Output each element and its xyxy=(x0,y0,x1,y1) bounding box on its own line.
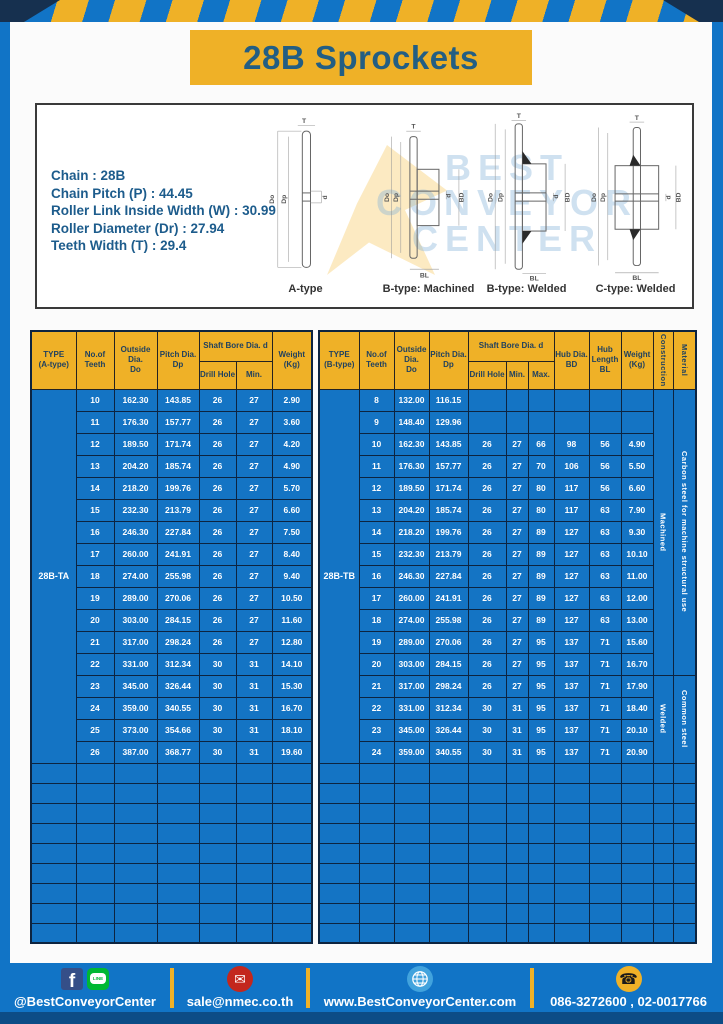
table-cell xyxy=(554,389,589,411)
table-cell xyxy=(236,783,272,803)
table-cell: 26 xyxy=(199,455,236,477)
table-cell: 6.60 xyxy=(272,499,312,521)
table-cell xyxy=(199,843,236,863)
table-cell: 4.90 xyxy=(621,433,653,455)
table-cell xyxy=(199,803,236,823)
table-cell xyxy=(319,763,359,783)
table-cell: 27 xyxy=(506,675,528,697)
table-cell: 148.40 xyxy=(394,411,429,433)
table-cell xyxy=(554,803,589,823)
table-cell xyxy=(589,783,621,803)
table-cell xyxy=(554,823,589,843)
table-cell xyxy=(621,883,653,903)
table-cell: 298.24 xyxy=(429,675,468,697)
table-cell xyxy=(114,783,157,803)
table-cell xyxy=(506,783,528,803)
col-header-weight: Weight (Kg) xyxy=(272,331,312,389)
table-cell xyxy=(76,903,114,923)
table-cell xyxy=(468,763,506,783)
website-url: www.BestConveyorCenter.com xyxy=(324,994,516,1009)
table-cell xyxy=(272,843,312,863)
table-cell: 204.20 xyxy=(394,499,429,521)
table-cell xyxy=(157,843,199,863)
empty-table-row xyxy=(31,863,312,883)
table-cell: 4.90 xyxy=(272,455,312,477)
table-cell xyxy=(319,843,359,863)
table-cell: 127 xyxy=(554,521,589,543)
table-row: 24359.00340.553031951377120.90 xyxy=(319,741,696,763)
table-cell: 106 xyxy=(554,455,589,477)
table-cell: 71 xyxy=(589,631,621,653)
table-cell xyxy=(199,783,236,803)
table-cell: 16 xyxy=(76,521,114,543)
table-cell: 27 xyxy=(506,631,528,653)
table-cell xyxy=(157,923,199,943)
table-cell: 27 xyxy=(236,477,272,499)
table-cell: 137 xyxy=(554,697,589,719)
table-cell: 26 xyxy=(468,631,506,653)
table-cell xyxy=(621,903,653,923)
table-cell xyxy=(528,763,554,783)
table-cell xyxy=(31,783,76,803)
table-cell: 15.60 xyxy=(621,631,653,653)
table-cell xyxy=(319,923,359,943)
table-cell: 26 xyxy=(199,477,236,499)
table-cell: 199.76 xyxy=(429,521,468,543)
social-handle: @BestConveyorCenter xyxy=(14,994,156,1009)
table-cell xyxy=(199,823,236,843)
table-row: 20303.00284.152627951377116.70 xyxy=(319,653,696,675)
table-cell xyxy=(673,783,696,803)
table-cell: 89 xyxy=(528,521,554,543)
table-cell: 89 xyxy=(528,565,554,587)
table-cell: 30 xyxy=(468,719,506,741)
table-cell xyxy=(429,783,468,803)
table-cell xyxy=(394,903,429,923)
table-cell xyxy=(157,863,199,883)
material-cell: Carbon steel for machine structural use xyxy=(673,389,696,675)
table-cell: 11.00 xyxy=(621,565,653,587)
table-cell: 14 xyxy=(359,521,394,543)
table-cell xyxy=(157,903,199,923)
svg-text:Dp: Dp xyxy=(497,193,504,202)
svg-text:T: T xyxy=(517,113,522,120)
table-cell xyxy=(114,923,157,943)
table-cell: 30 xyxy=(199,675,236,697)
table-cell xyxy=(157,883,199,903)
table-cell: 21 xyxy=(76,631,114,653)
footer-website: www.BestConveyorCenter.com xyxy=(310,966,530,1009)
table-cell xyxy=(76,783,114,803)
empty-table-row xyxy=(319,863,696,883)
table-cell: 199.76 xyxy=(157,477,199,499)
table-row: 10162.30143.8526276698564.90 xyxy=(319,433,696,455)
table-cell: 27 xyxy=(236,609,272,631)
empty-table-row xyxy=(319,923,696,943)
table-cell: 260.00 xyxy=(114,543,157,565)
table-cell: 27 xyxy=(506,565,528,587)
facebook-icon: f xyxy=(61,968,83,990)
table-cell: 27 xyxy=(236,543,272,565)
table-cell: 270.06 xyxy=(429,631,468,653)
table-cell xyxy=(468,389,506,411)
table-cell xyxy=(157,763,199,783)
col-header-shaft-bore: Shaft Bore Dia. d xyxy=(468,331,554,361)
table-cell: 331.00 xyxy=(114,653,157,675)
table-cell: 2.90 xyxy=(272,389,312,411)
table-cell: 63 xyxy=(589,543,621,565)
svg-text:Dp: Dp xyxy=(393,193,400,202)
table-cell xyxy=(653,763,673,783)
table-cell: 20 xyxy=(76,609,114,631)
table-cell xyxy=(468,803,506,823)
spec-line-chain: Chain : 28B xyxy=(51,167,276,185)
table-cell xyxy=(589,923,621,943)
table-cell xyxy=(76,923,114,943)
table-cell: 26 xyxy=(468,609,506,631)
table-cell xyxy=(272,883,312,903)
table-cell: 23 xyxy=(76,675,114,697)
table-cell xyxy=(673,863,696,883)
footer-email: ✉ sale@nmec.co.th xyxy=(174,966,306,1009)
table-cell xyxy=(621,843,653,863)
svg-text:Do: Do xyxy=(591,193,598,202)
table-cell xyxy=(114,863,157,883)
table-cell: 345.00 xyxy=(394,719,429,741)
table-cell: 27 xyxy=(236,499,272,521)
table-cell: 27 xyxy=(506,543,528,565)
construction-cell: Welded xyxy=(653,675,673,763)
table-cell: 31 xyxy=(506,719,528,741)
table-cell xyxy=(468,863,506,883)
table-b-type: TYPE (B-type) No.of Teeth Outside Dia. D… xyxy=(318,330,697,944)
table-cell xyxy=(76,883,114,903)
table-cell xyxy=(319,863,359,883)
table-cell: 18 xyxy=(76,565,114,587)
table-cell xyxy=(272,863,312,883)
table-cell: 71 xyxy=(589,697,621,719)
table-cell: 15 xyxy=(76,499,114,521)
table-cell xyxy=(31,923,76,943)
col-header-type-a: TYPE (A-type) xyxy=(31,331,76,389)
table-cell xyxy=(554,903,589,923)
table-cell xyxy=(236,903,272,923)
table-cell: 11 xyxy=(359,455,394,477)
table-cell: 340.55 xyxy=(157,697,199,719)
table-cell: 70 xyxy=(528,455,554,477)
table-cell: 284.15 xyxy=(157,609,199,631)
table-cell: 26 xyxy=(468,653,506,675)
table-cell xyxy=(236,863,272,883)
table-cell xyxy=(157,823,199,843)
table-cell xyxy=(31,903,76,923)
table-cell: 10.10 xyxy=(621,543,653,565)
table-cell xyxy=(589,843,621,863)
svg-text:d: d xyxy=(322,195,329,199)
table-cell: 143.85 xyxy=(429,433,468,455)
table-cell xyxy=(653,903,673,923)
table-cell xyxy=(468,843,506,863)
table-cell: 6.60 xyxy=(621,477,653,499)
table-cell: 10 xyxy=(359,433,394,455)
table-cell xyxy=(157,803,199,823)
table-cell: 23 xyxy=(359,719,394,741)
table-cell xyxy=(506,823,528,843)
table-cell: 26 xyxy=(199,499,236,521)
col-header-material: Material xyxy=(673,331,696,389)
table-cell xyxy=(429,903,468,923)
table-cell xyxy=(359,843,394,863)
table-cell: 3.60 xyxy=(272,411,312,433)
table-row: 15232.30213.792627891276310.10 xyxy=(319,543,696,565)
col-header-drill-hole: Drill Hole xyxy=(199,361,236,389)
table-cell: 15.30 xyxy=(272,675,312,697)
table-cell: 137 xyxy=(554,631,589,653)
svg-text:BD: BD xyxy=(675,192,682,202)
svg-text:BL: BL xyxy=(530,276,539,281)
table-cell: 26 xyxy=(468,565,506,587)
table-cell: 9 xyxy=(359,411,394,433)
svg-text:Do: Do xyxy=(384,193,391,202)
table-cell: 89 xyxy=(528,543,554,565)
table-cell xyxy=(653,803,673,823)
table-cell xyxy=(673,923,696,943)
table-cell: 16 xyxy=(359,565,394,587)
table-cell: 11.60 xyxy=(272,609,312,631)
table-cell: 12 xyxy=(359,477,394,499)
col-header-max: Max. xyxy=(528,361,554,389)
table-cell: 27 xyxy=(236,433,272,455)
spec-line-teeth-width: Teeth Width (T) : 29.4 xyxy=(51,237,276,255)
table-cell xyxy=(31,763,76,783)
drawing-b-type-welded: T Do Dp d BD BL B-type: Welded xyxy=(474,113,579,295)
table-cell: 26 xyxy=(468,587,506,609)
col-header-hub-dia: Hub Dia. BD xyxy=(554,331,589,389)
table-row: 28B-TB8132.00116.15MachinedCarbon steel … xyxy=(319,389,696,411)
page-title: 28B Sprockets xyxy=(243,39,479,77)
table-cell: 204.20 xyxy=(114,455,157,477)
table-cell: 331.00 xyxy=(394,697,429,719)
table-cell: 127 xyxy=(554,565,589,587)
table-cell xyxy=(236,843,272,863)
table-cell: 80 xyxy=(528,477,554,499)
table-cell xyxy=(468,411,506,433)
table-cell xyxy=(76,763,114,783)
mail-icon: ✉ xyxy=(227,966,253,992)
table-cell: 12 xyxy=(76,433,114,455)
table-row: 22331.00312.343031951377118.40 xyxy=(319,697,696,719)
table-cell: 171.74 xyxy=(157,433,199,455)
table-cell: 5.70 xyxy=(272,477,312,499)
table-cell: 289.00 xyxy=(114,587,157,609)
empty-table-row xyxy=(31,783,312,803)
table-cell: 129.96 xyxy=(429,411,468,433)
line-icon: LINE xyxy=(87,968,109,990)
table-cell: 7.50 xyxy=(272,521,312,543)
table-cell: 31 xyxy=(236,741,272,763)
table-cell: 22 xyxy=(359,697,394,719)
table-cell: 31 xyxy=(236,653,272,675)
table-cell xyxy=(319,803,359,823)
table-cell: 30 xyxy=(199,653,236,675)
table-cell: 22 xyxy=(76,653,114,675)
table-cell: 15 xyxy=(359,543,394,565)
table-cell xyxy=(653,923,673,943)
table-cell xyxy=(468,883,506,903)
table-cell: 289.00 xyxy=(394,631,429,653)
table-cell: 12.00 xyxy=(621,587,653,609)
table-row: 13204.20185.74262780117637.90 xyxy=(319,499,696,521)
table-cell xyxy=(621,803,653,823)
table-cell: 26 xyxy=(199,631,236,653)
table-cell: 66 xyxy=(528,433,554,455)
table-cell: 20.10 xyxy=(621,719,653,741)
table-cell: 345.00 xyxy=(114,675,157,697)
table-cell: 270.06 xyxy=(157,587,199,609)
table-cell: 137 xyxy=(554,741,589,763)
table-cell: 21 xyxy=(359,675,394,697)
table-a-type: TYPE (A-type) No.of Teeth Outside Dia. D… xyxy=(30,330,313,944)
table-cell: 30 xyxy=(468,697,506,719)
table-cell: 71 xyxy=(589,675,621,697)
table-cell xyxy=(554,923,589,943)
table-cell: 89 xyxy=(528,609,554,631)
table-cell: 8 xyxy=(359,389,394,411)
table-cell: 26 xyxy=(199,543,236,565)
table-cell xyxy=(528,883,554,903)
table-cell: 26 xyxy=(468,455,506,477)
table-cell xyxy=(114,823,157,843)
table-cell: 14.10 xyxy=(272,653,312,675)
table-cell xyxy=(554,763,589,783)
table-cell: 255.98 xyxy=(157,565,199,587)
table-cell: 26 xyxy=(199,411,236,433)
table-cell: 30 xyxy=(199,697,236,719)
svg-text:d: d xyxy=(446,194,453,198)
table-cell: 95 xyxy=(528,741,554,763)
empty-table-row xyxy=(319,883,696,903)
table-cell: 5.50 xyxy=(621,455,653,477)
table-cell xyxy=(468,823,506,843)
spec-line-pitch: Chain Pitch (P) : 44.45 xyxy=(51,185,276,203)
table-cell: 31 xyxy=(236,719,272,741)
table-cell: 27 xyxy=(506,477,528,499)
table-cell xyxy=(272,763,312,783)
table-cell: 227.84 xyxy=(157,521,199,543)
table-cell xyxy=(528,863,554,883)
table-cell: 31 xyxy=(506,697,528,719)
table-cell xyxy=(589,823,621,843)
table-cell xyxy=(114,843,157,863)
table-cell xyxy=(236,923,272,943)
table-cell xyxy=(528,823,554,843)
table-cell xyxy=(589,903,621,923)
table-cell: 373.00 xyxy=(114,719,157,741)
table-row: 12189.50171.74262780117566.60 xyxy=(319,477,696,499)
table-cell: 8.40 xyxy=(272,543,312,565)
table-cell xyxy=(76,823,114,843)
table-cell: 312.34 xyxy=(157,653,199,675)
table-cell xyxy=(589,863,621,883)
svg-text:Dp: Dp xyxy=(600,193,607,202)
table-cell xyxy=(319,783,359,803)
table-cell: 27 xyxy=(506,521,528,543)
table-cell: 185.74 xyxy=(157,455,199,477)
table-cell: 326.44 xyxy=(429,719,468,741)
table-cell xyxy=(394,763,429,783)
table-cell: 14 xyxy=(76,477,114,499)
table-cell xyxy=(528,803,554,823)
empty-table-row xyxy=(319,843,696,863)
table-cell: 317.00 xyxy=(394,675,429,697)
empty-table-row xyxy=(31,903,312,923)
table-cell: 189.50 xyxy=(114,433,157,455)
table-row: 14218.20199.76262789127639.30 xyxy=(319,521,696,543)
table-cell: 95 xyxy=(528,631,554,653)
table-cell: 12.80 xyxy=(272,631,312,653)
table-cell xyxy=(468,923,506,943)
table-cell: 232.30 xyxy=(394,543,429,565)
table-cell: 132.00 xyxy=(394,389,429,411)
col-header-teeth: No.of Teeth xyxy=(359,331,394,389)
footer-phone: ☎ 086-3272600 , 02-0017766 xyxy=(534,966,723,1009)
table-cell: 19 xyxy=(76,587,114,609)
table-cell xyxy=(554,411,589,433)
table-cell: 27 xyxy=(506,653,528,675)
table-cell xyxy=(528,843,554,863)
table-cell xyxy=(199,923,236,943)
table-cell: 27 xyxy=(506,609,528,631)
table-cell xyxy=(359,763,394,783)
table-cell: 71 xyxy=(589,719,621,741)
table-cell: 117 xyxy=(554,477,589,499)
table-cell xyxy=(528,783,554,803)
table-cell: 16.70 xyxy=(272,697,312,719)
table-cell xyxy=(272,923,312,943)
spec-line-roller-dia: Roller Diameter (Dr) : 27.94 xyxy=(51,220,276,238)
col-header-outside-dia: Outside Dia. Do xyxy=(114,331,157,389)
email-address: sale@nmec.co.th xyxy=(187,994,294,1009)
table-cell: 326.44 xyxy=(157,675,199,697)
caption-c-type-welded: C-type: Welded xyxy=(596,283,676,295)
table-cell xyxy=(394,923,429,943)
table-cell xyxy=(554,863,589,883)
col-header-hub-length: Hub Length BL xyxy=(589,331,621,389)
table-cell: 27 xyxy=(236,411,272,433)
table-cell xyxy=(653,883,673,903)
table-cell xyxy=(506,411,528,433)
table-cell: 10 xyxy=(76,389,114,411)
table-cell xyxy=(31,803,76,823)
table-cell: 17 xyxy=(76,543,114,565)
svg-text:d: d xyxy=(665,195,672,199)
caption-b-type-machined: B-type: Machined xyxy=(383,283,475,295)
table-cell: 27 xyxy=(236,389,272,411)
table-cell: 31 xyxy=(236,675,272,697)
table-cell: 303.00 xyxy=(114,609,157,631)
table-cell: 284.15 xyxy=(429,653,468,675)
table-cell: 16.70 xyxy=(621,653,653,675)
table-cell: 127 xyxy=(554,587,589,609)
table-cell: 137 xyxy=(554,719,589,741)
table-cell: 19 xyxy=(359,631,394,653)
table-cell xyxy=(272,783,312,803)
footer-social: f LINE @BestConveyorCenter xyxy=(0,966,170,1009)
table-cell: 241.91 xyxy=(157,543,199,565)
table-cell xyxy=(673,763,696,783)
table-cell xyxy=(528,923,554,943)
table-cell xyxy=(554,783,589,803)
